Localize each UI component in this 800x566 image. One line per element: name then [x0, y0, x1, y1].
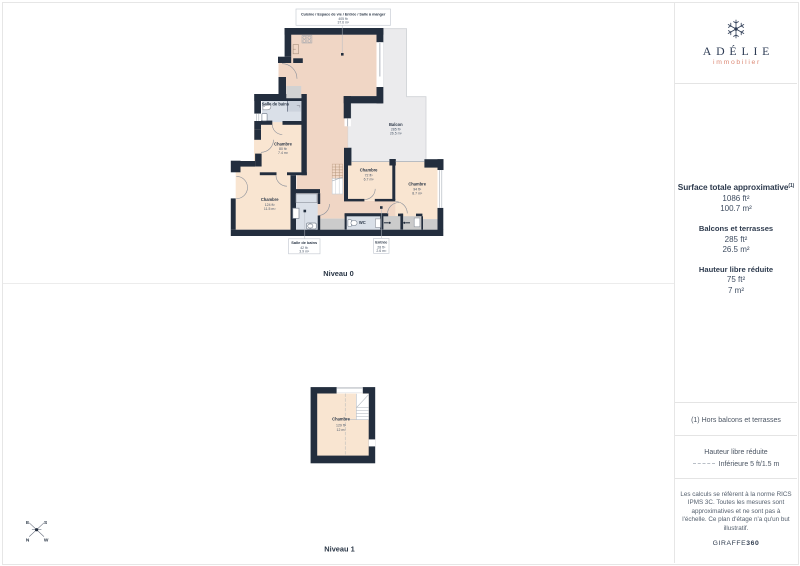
svg-text:W: W — [44, 538, 49, 544]
svg-text:Chambre: Chambre — [332, 416, 350, 421]
svg-text:Niveau 0: Niveau 0 — [323, 269, 353, 278]
svg-text:11.5 m²: 11.5 m² — [264, 207, 276, 211]
svg-text:Chambre: Chambre — [261, 197, 279, 202]
svg-text:N: N — [26, 538, 30, 544]
svg-text:12 m²: 12 m² — [337, 428, 347, 432]
svg-text:37.6 m²: 37.6 m² — [337, 21, 349, 25]
svg-text:2.6 m²: 2.6 m² — [376, 249, 387, 253]
svg-text:Chambre: Chambre — [274, 141, 292, 146]
svg-text:S: S — [44, 520, 48, 526]
svg-text:Chambre: Chambre — [408, 182, 426, 187]
svg-text:8.7 m²: 8.7 m² — [412, 191, 423, 195]
svg-text:3.9 m²: 3.9 m² — [299, 250, 310, 254]
svg-text:Balcon: Balcon — [389, 122, 403, 127]
svg-text:129 ft²: 129 ft² — [336, 424, 347, 428]
svg-text:Entrée: Entrée — [375, 240, 388, 245]
svg-text:Salle de bains: Salle de bains — [291, 240, 317, 245]
svg-text:26.5 m²: 26.5 m² — [390, 132, 403, 136]
svg-text:7.4 m²: 7.4 m² — [278, 151, 289, 155]
svg-text:WC: WC — [359, 220, 366, 225]
svg-text:Chambre: Chambre — [360, 168, 378, 173]
svg-text:Niveau 1: Niveau 1 — [324, 545, 354, 554]
svg-text:6.7 m²: 6.7 m² — [364, 178, 375, 182]
svg-text:Salle de bains: Salle de bains — [262, 102, 290, 107]
svg-text:Cuisine / Espace de vie / Entr: Cuisine / Espace de vie / Entrée / Salle… — [301, 12, 386, 16]
